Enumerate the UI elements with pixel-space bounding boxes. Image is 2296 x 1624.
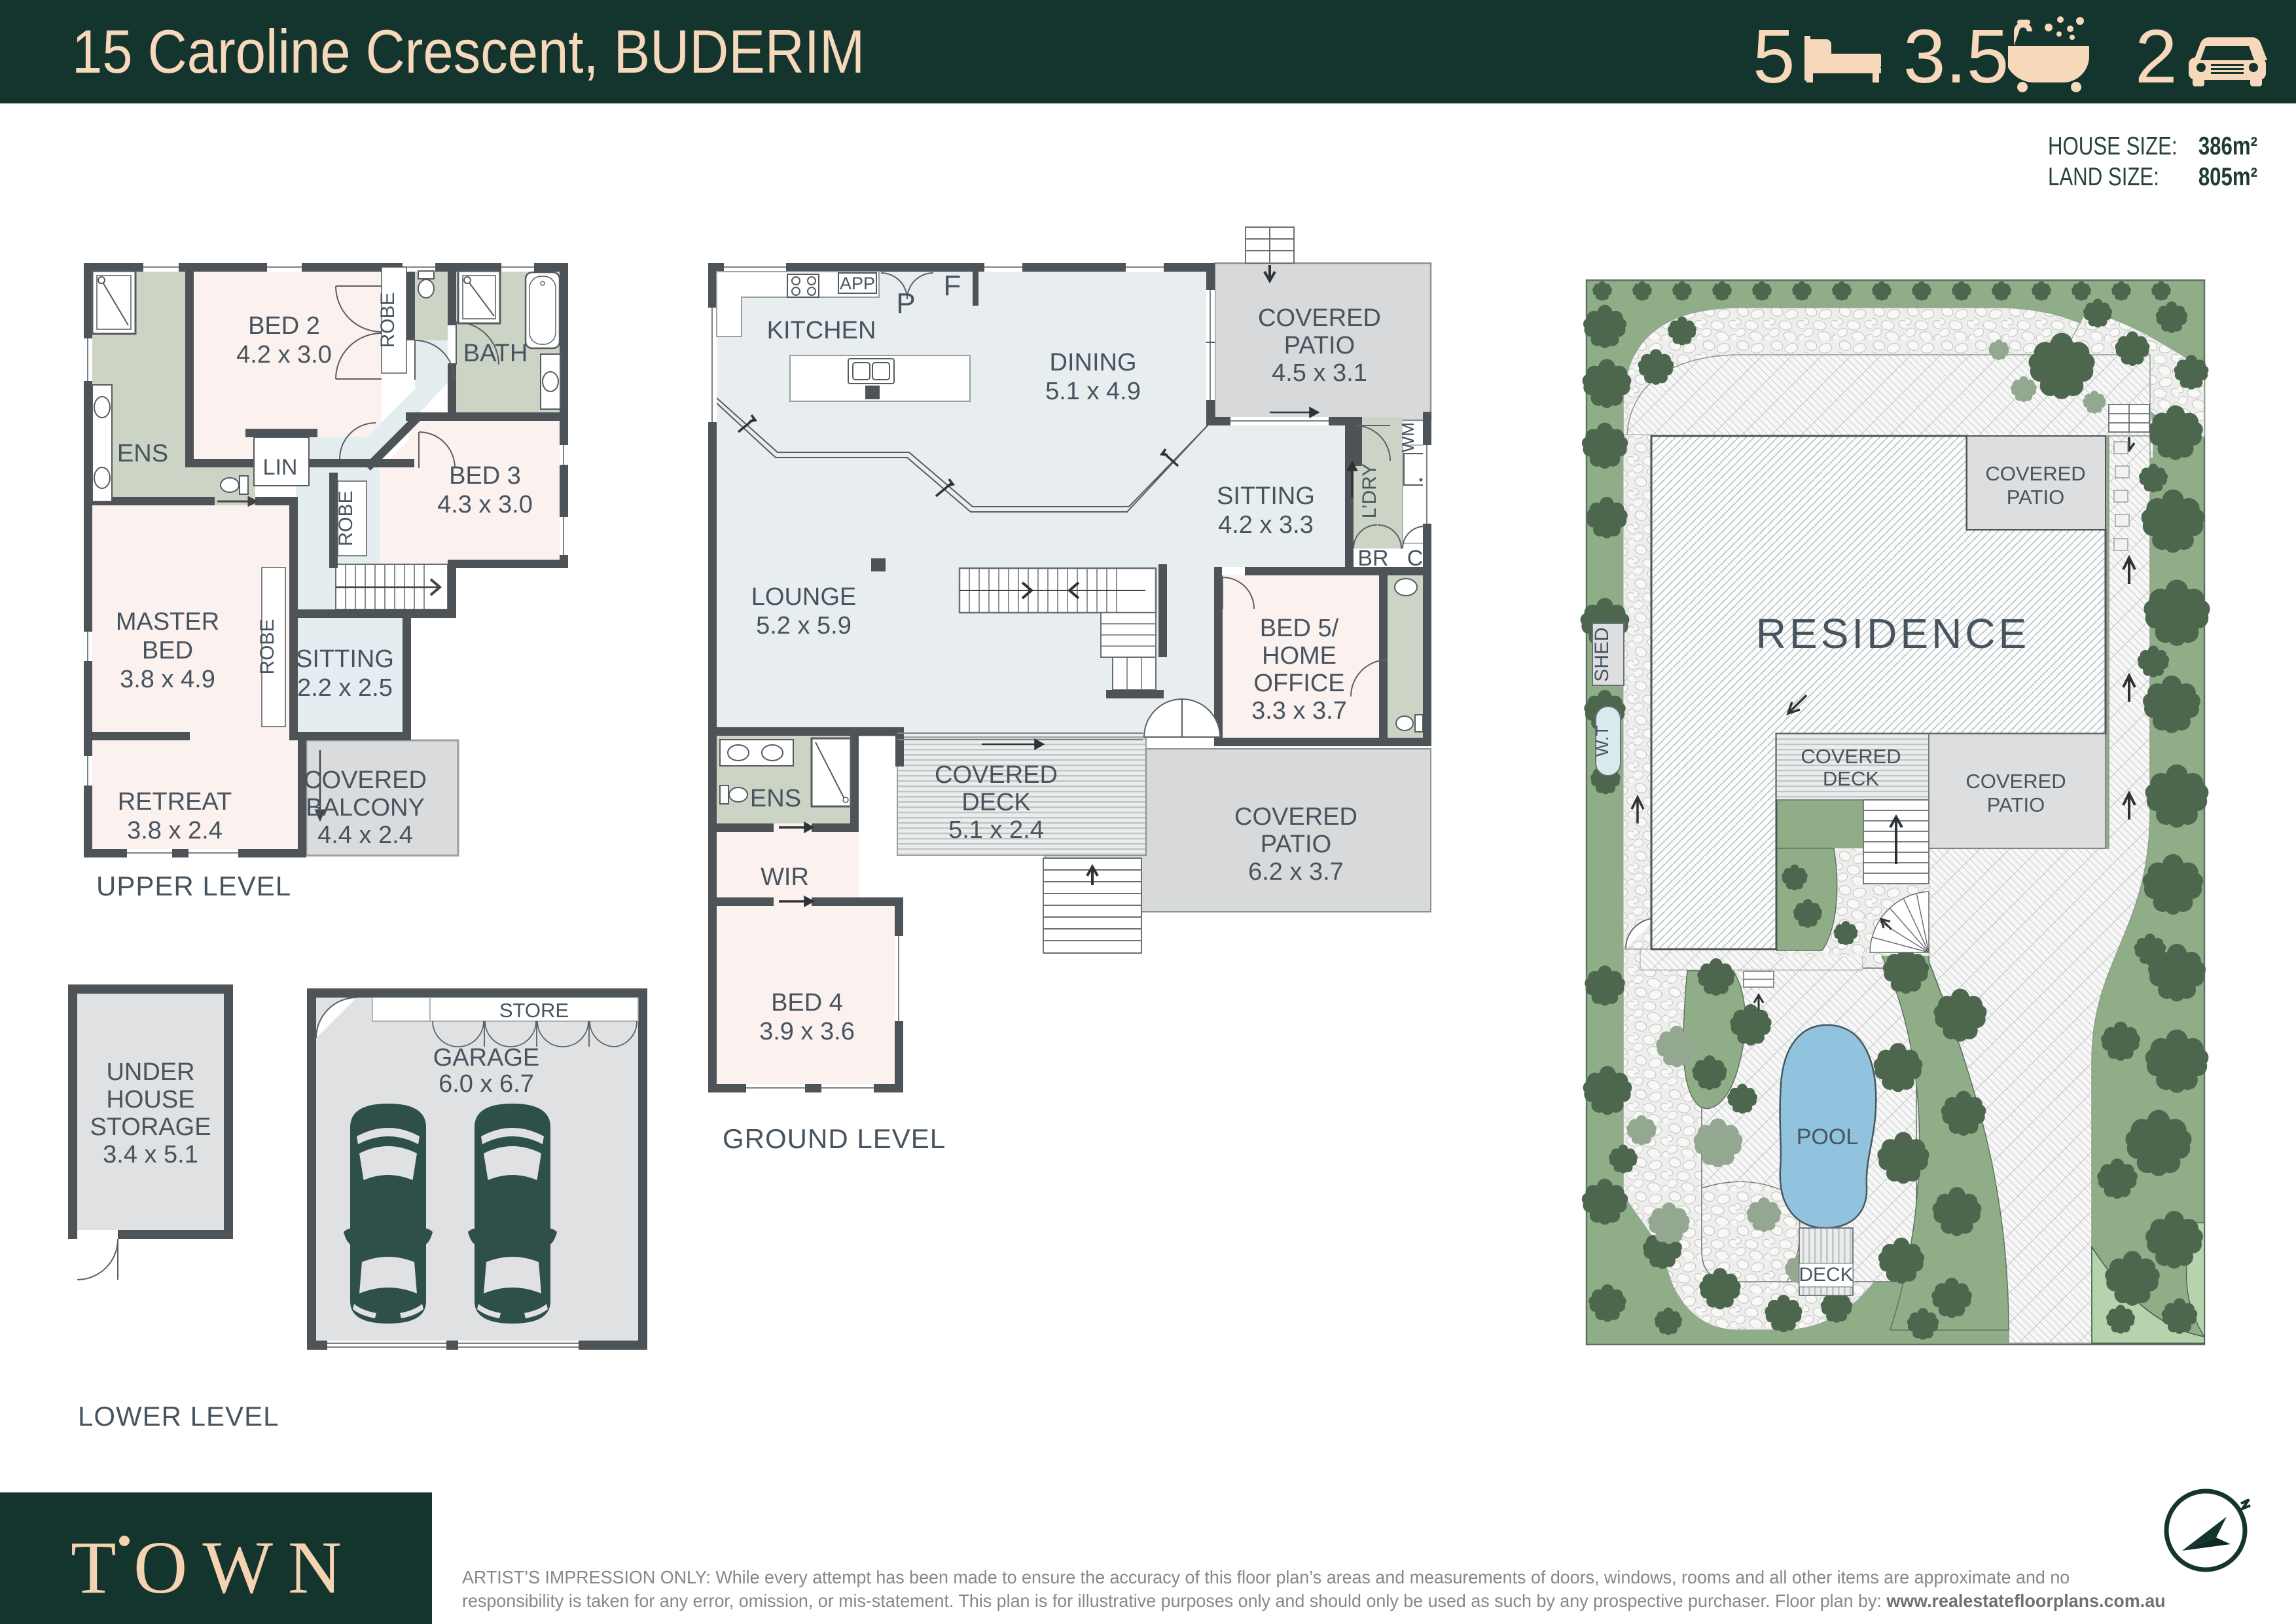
svg-text:OWN: OWN [134, 1526, 357, 1609]
svg-text:ROBE: ROBE [377, 292, 399, 348]
svg-text:3.9 x 3.6: 3.9 x 3.6 [759, 1018, 855, 1045]
svg-text:3.4 x 5.1: 3.4 x 5.1 [103, 1141, 198, 1168]
svg-text:BED 5/: BED 5/ [1260, 615, 1339, 642]
svg-text:2.2 x 2.5: 2.2 x 2.5 [297, 674, 393, 702]
svg-text:LIN: LIN [263, 455, 298, 480]
svg-text:WIR: WIR [761, 863, 809, 891]
svg-text:UNDER: UNDER [106, 1058, 194, 1086]
svg-text:BED: BED [142, 637, 193, 664]
svg-text:ROBE: ROBE [335, 490, 357, 546]
svg-text:GARAGE: GARAGE [433, 1044, 540, 1072]
svg-text:6.0 x 6.7: 6.0 x 6.7 [439, 1070, 534, 1098]
svg-text:PATIO: PATIO [1284, 332, 1355, 359]
svg-text:COVERED: COVERED [935, 761, 1058, 789]
svg-text:5.1 x 4.9: 5.1 x 4.9 [1045, 378, 1141, 405]
svg-text:RESIDENCE: RESIDENCE [1756, 610, 2030, 657]
svg-text:4.4 x 2.4: 4.4 x 2.4 [317, 821, 413, 849]
svg-text:PATIO: PATIO [2007, 486, 2064, 509]
svg-text:WM: WM [1398, 422, 1418, 452]
svg-text:4.2 x 3.3: 4.2 x 3.3 [1218, 511, 1314, 539]
svg-text:DINING: DINING [1050, 349, 1137, 376]
svg-text:MASTER: MASTER [116, 608, 219, 636]
svg-text:DECK: DECK [1823, 767, 1879, 790]
svg-text:HOUSE: HOUSE [106, 1086, 194, 1113]
svg-text:RETREAT: RETREAT [118, 788, 232, 816]
svg-text:BED 3: BED 3 [449, 462, 521, 490]
svg-text:COVERED: COVERED [1258, 304, 1381, 332]
svg-text:COVERED: COVERED [1965, 770, 2066, 793]
svg-text:5.1 x 2.4: 5.1 x 2.4 [948, 816, 1044, 844]
svg-text:BED 4: BED 4 [771, 989, 843, 1017]
svg-text:OFFICE: OFFICE [1253, 670, 1344, 697]
svg-text:4.3 x 3.0: 4.3 x 3.0 [437, 491, 533, 518]
svg-text:3.3 x 3.7: 3.3 x 3.7 [1251, 697, 1347, 725]
svg-text:4.2 x 3.0: 4.2 x 3.0 [236, 341, 332, 369]
svg-text:PATIO: PATIO [1987, 793, 2045, 816]
svg-text:SITTING: SITTING [1217, 482, 1315, 510]
svg-text:COVERED: COVERED [1234, 803, 1357, 831]
svg-text:BALCONY: BALCONY [306, 794, 425, 821]
svg-text:SHED: SHED [1591, 627, 1613, 681]
svg-text:PATIO: PATIO [1261, 831, 1331, 858]
svg-text:BED 2: BED 2 [248, 312, 320, 340]
svg-text:STORE: STORE [499, 999, 569, 1022]
svg-text:HOME: HOME [1262, 642, 1336, 670]
svg-text:5.2 x 5.9: 5.2 x 5.9 [756, 612, 852, 640]
svg-text:BATH: BATH [463, 340, 528, 367]
svg-text:2: 2 [2135, 14, 2178, 99]
svg-text:C: C [1407, 546, 1424, 571]
svg-text:W.T: W.T [1592, 725, 1612, 757]
svg-text:KITCHEN: KITCHEN [767, 317, 876, 344]
svg-text:P: P [896, 287, 915, 319]
svg-text:BR: BR [1357, 546, 1388, 571]
svg-text:6.2 x 3.7: 6.2 x 3.7 [1248, 858, 1344, 886]
svg-text:3.8 x 4.9: 3.8 x 4.9 [120, 666, 215, 693]
svg-text:COVERED: COVERED [1801, 745, 1901, 768]
svg-text:3.5: 3.5 [1903, 14, 2009, 99]
svg-text:APP: APP [840, 274, 875, 293]
svg-text:DECK: DECK [961, 789, 1031, 816]
svg-text:COVERED: COVERED [1985, 462, 2085, 485]
svg-text:ENS: ENS [117, 440, 168, 467]
svg-text:L’DRY: L’DRY [1359, 463, 1380, 519]
svg-text:POOL: POOL [1797, 1125, 1858, 1149]
svg-text:4.5 x 3.1: 4.5 x 3.1 [1272, 359, 1367, 387]
svg-text:F: F [944, 270, 961, 302]
svg-text:5: 5 [1753, 14, 1795, 99]
svg-text:ENS: ENS [750, 785, 801, 812]
svg-text:SITTING: SITTING [296, 645, 394, 673]
svg-text:STORAGE: STORAGE [90, 1113, 211, 1141]
svg-text:DECK: DECK [1799, 1264, 1853, 1286]
svg-text:ROBE: ROBE [257, 619, 278, 674]
svg-text:LOUNGE: LOUNGE [751, 583, 856, 611]
svg-text:3.8 x 2.4: 3.8 x 2.4 [127, 817, 223, 844]
svg-text:COVERED: COVERED [304, 767, 427, 794]
